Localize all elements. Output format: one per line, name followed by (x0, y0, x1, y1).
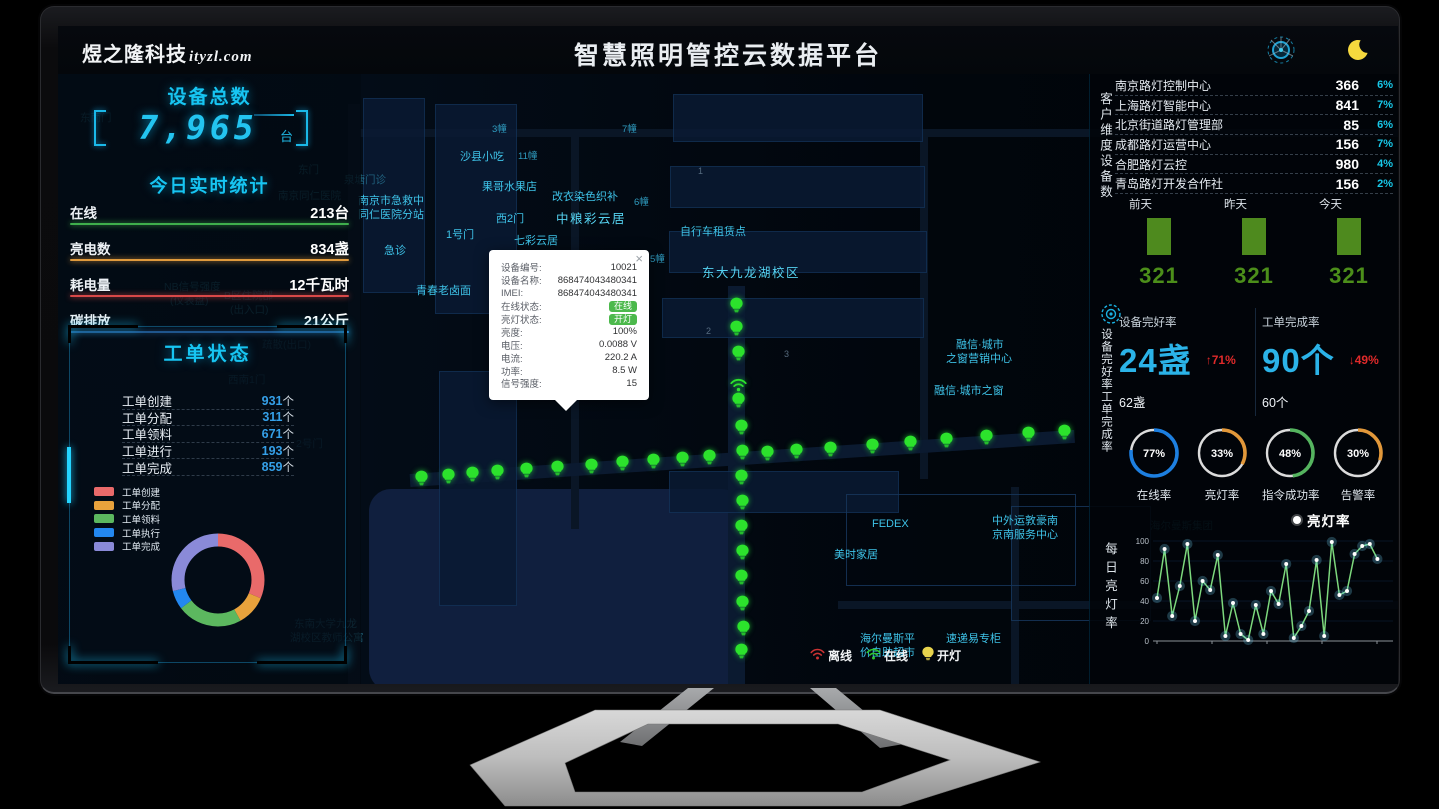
stat-value: 213台 (310, 202, 349, 223)
gauge-chart: 48% 指令成功率 (1262, 426, 1318, 503)
stat-underline (70, 259, 349, 261)
popup-field-value: 15 (626, 378, 637, 389)
lamp-marker-icon[interactable] (442, 468, 455, 489)
customer-name: 上海路灯智能中心 (1115, 97, 1315, 114)
map-status-legend: 离线在线开灯 (810, 646, 961, 664)
map-place-label: 2 (706, 326, 711, 336)
rate-card-sub: 62盏 (1119, 392, 1257, 411)
legend-swatch-icon (94, 501, 114, 510)
svg-text:77%: 77% (1143, 448, 1165, 460)
map-place-label: 7幢 (622, 121, 637, 135)
customer-name: 青岛路灯开发合作社 (1115, 175, 1315, 192)
map-place-label: 京南服务中心 (992, 526, 1058, 542)
popup-field-label: 亮度: (501, 325, 523, 339)
customer-device-count: 156 (1315, 176, 1359, 192)
workorder-value: 193个 (262, 443, 294, 459)
svg-text:80: 80 (1140, 557, 1149, 566)
rate-card-value: 90个 (1262, 334, 1335, 382)
gauge-chart: 33% 亮灯率 (1194, 426, 1250, 503)
day-bar (1147, 218, 1171, 255)
map-water-block (369, 489, 743, 684)
legend-swatch-icon (94, 487, 114, 496)
map-place-label: 5幢 (650, 251, 665, 265)
customer-device-count: 980 (1315, 156, 1359, 172)
map-legend-item: 在线 (866, 646, 908, 664)
gauge-chart: 77% 在线率 (1126, 426, 1182, 503)
map-place-label: 东大九龙湖校区 (702, 262, 800, 281)
legend-swatch-icon (94, 542, 114, 551)
customer-rows: 南京路灯控制中心3666%上海路灯智能中心8417%北京街道路灯管理部856%成… (1115, 76, 1393, 194)
lamp-marker-icon[interactable] (616, 455, 629, 476)
customer-percent: 6% (1359, 119, 1393, 131)
svg-text:33%: 33% (1211, 448, 1233, 460)
customer-percent: 7% (1359, 138, 1393, 150)
gauge-label: 告警率 (1330, 487, 1386, 503)
frame-edge-accent (67, 447, 71, 503)
map-place-label: 七彩云居 (514, 232, 558, 248)
map-place-label: 1号门 (446, 226, 474, 242)
lamp-marker-icon[interactable] (703, 449, 716, 470)
map-place-label: 改衣染色织补 (552, 188, 618, 204)
page-title: 智慧照明管控云数据平台 (58, 36, 1398, 72)
popup-pointer (555, 400, 577, 411)
rate-card-trend: ↑71% (1206, 353, 1236, 367)
day-bar (1242, 218, 1266, 255)
lamp-marker-icon[interactable] (790, 443, 803, 464)
map-place-label: 中粮彩云居 (556, 208, 626, 227)
workorder-value: 931个 (262, 393, 294, 409)
popup-close-icon[interactable]: × (635, 252, 643, 265)
day-bar-column: 昨天321 (1210, 196, 1298, 289)
popup-field-label: 在线状态: (501, 299, 542, 313)
left-panel: 设备总数 7,965 台 今日实时统计 在线213台亮电数834盏耗电量12千瓦… (58, 74, 361, 684)
popup-field-label: 信号强度: (501, 376, 542, 390)
customer-name: 成都路灯运营中心 (1115, 136, 1315, 153)
right-panel: 客户维度设备数 南京路灯控制中心3666%上海路灯智能中心8417%北京街道路灯… (1089, 74, 1398, 684)
lamp-marker-icon[interactable] (735, 569, 748, 590)
bracket-decoration (94, 110, 106, 146)
map-place-label: FEDEX (872, 518, 909, 530)
workorder-value: 311个 (262, 409, 294, 425)
map-place-label: 美时家居 (834, 546, 878, 562)
workorder-row: 工单完成859个 (122, 459, 294, 476)
popup-row: 亮灯状态:开灯 (501, 313, 637, 326)
moon-icon[interactable] (1346, 38, 1370, 67)
rate-card-sub: 60个 (1262, 392, 1398, 411)
popup-row: IMEI:868474043480341 (501, 287, 637, 300)
lamp-marker-icon[interactable] (824, 441, 837, 462)
map-place-label: 沙县小吃 (460, 148, 504, 164)
customer-name: 南京路灯控制中心 (1115, 77, 1315, 94)
three-day-bar-chart: 前天321昨天321今天321 (1115, 196, 1393, 289)
today-stat-row: 亮电数834盏 (70, 238, 349, 261)
status-badge: 在线 (609, 301, 637, 312)
map-place-label: 速递易专柜 (946, 630, 1001, 646)
lamp-marker-icon[interactable] (735, 469, 748, 490)
lamp-marker-icon[interactable] (676, 451, 689, 472)
lamp-marker-icon[interactable] (732, 345, 745, 366)
day-bar-column: 前天321 (1115, 196, 1203, 289)
lamp-marker-icon[interactable] (736, 444, 749, 465)
map-place-label: 11幢 (518, 148, 537, 162)
map-place-label: 西2门 (496, 210, 524, 226)
radar-decoration-icon (1258, 28, 1304, 77)
legend-label: 工单领料 (122, 512, 160, 526)
daily-chart-legend[interactable]: 亮灯率 (1293, 510, 1351, 530)
customer-name: 合肥路灯云控 (1115, 156, 1315, 173)
customer-row: 北京街道路灯管理部856% (1115, 115, 1393, 135)
map-place-label: 果哥水果店 (482, 178, 537, 194)
map-place-label: 自行车租赁点 (680, 223, 746, 239)
map-place-label: 6幢 (634, 194, 649, 208)
svg-text:0: 0 (1145, 637, 1150, 646)
wifi-online-marker-icon[interactable] (730, 378, 747, 397)
customer-percent: 6% (1359, 79, 1393, 91)
customer-percent: 4% (1359, 158, 1393, 170)
legend-swatch-icon (94, 528, 114, 537)
popup-row: 电流:220.2 A (501, 351, 637, 364)
gauge-label: 在线率 (1126, 487, 1182, 503)
map-legend-label: 在线 (884, 647, 908, 664)
lamp-marker-icon[interactable] (1058, 424, 1071, 445)
customer-device-count: 841 (1315, 97, 1359, 113)
today-stats-title: 今日实时统计 (58, 172, 361, 198)
lamp-marker-icon[interactable] (585, 458, 598, 479)
popup-row: 电压:0.0088 V (501, 338, 637, 351)
workorder-legend-item[interactable]: 工单完成 (94, 539, 160, 553)
workorder-legend-item[interactable]: 工单领料 (94, 512, 160, 526)
lamp-marker-icon[interactable] (737, 620, 750, 641)
lamp-marker-icon[interactable] (761, 445, 774, 466)
customer-row: 合肥路灯云控9804% (1115, 155, 1393, 175)
workorder-label: 工单完成 (122, 458, 172, 477)
customer-device-count: 85 (1315, 117, 1359, 133)
workorder-panel: 工单状态 工单创建931个工单分配311个工单领料671个工单进行193个工单完… (69, 326, 346, 663)
svg-text:20: 20 (1140, 617, 1149, 626)
day-value: 321 (1139, 263, 1179, 289)
bracket-decoration (296, 110, 308, 146)
lamp-marker-icon[interactable] (736, 544, 749, 565)
customer-row: 青岛路灯开发合作社1562% (1115, 174, 1393, 194)
stat-label: 耗电量 (70, 274, 111, 294)
lamp-marker-icon[interactable] (940, 432, 953, 453)
popup-row: 在线状态:在线 (501, 300, 637, 313)
status-badge: 开灯 (609, 314, 637, 325)
rate-card-title: 设备完好率 (1119, 314, 1257, 330)
lamp-marker-icon[interactable] (1022, 426, 1035, 447)
map-place-label: 1 (698, 166, 703, 176)
lamp-marker-icon[interactable] (735, 519, 748, 540)
wifi-icon (810, 648, 825, 663)
popup-field-value: 868474043480341 (558, 288, 637, 299)
gauge-chart: 30% 告警率 (1330, 426, 1386, 503)
workorder-donut-chart (168, 530, 268, 630)
workorder-legend: 工单创建工单分配工单领料工单执行工单完成 (94, 485, 160, 553)
popup-field-label: 电流: (501, 351, 523, 365)
today-stat-row: 在线213台 (70, 202, 349, 225)
customer-percent: 7% (1359, 99, 1393, 111)
popup-row: 功率:8.5 W (501, 364, 637, 377)
today-stat-row: 耗电量12千瓦时 (70, 274, 349, 297)
gauge-label: 指令成功率 (1262, 487, 1318, 503)
lamp-marker-icon[interactable] (551, 460, 564, 481)
svg-text:30%: 30% (1347, 448, 1369, 460)
workorder-rows: 工单创建931个工单分配311个工单领料671个工单进行193个工单完成859个 (122, 393, 294, 476)
lamp-marker-icon[interactable] (415, 470, 428, 491)
divider (1255, 308, 1256, 416)
workorder-legend-item[interactable]: 工单执行 (94, 526, 160, 540)
lamp-marker-icon[interactable] (904, 435, 917, 456)
map-building (662, 298, 924, 338)
map-legend-item: 开灯 (922, 646, 961, 664)
legend-dot-icon (1293, 516, 1301, 524)
workorder-rate-card: 工单完成率 90个↓49% 60个 (1262, 314, 1398, 411)
map-place-label: 3 (784, 349, 789, 359)
frame-corner (257, 646, 347, 664)
svg-text:60: 60 (1140, 577, 1149, 586)
lamp-marker-icon[interactable] (730, 320, 743, 341)
popup-row: 信号强度:15 (501, 377, 637, 390)
legend-label: 工单执行 (122, 526, 160, 540)
gauge-charts: 77% 在线率 33% 亮灯率 48% 指令成功率 30% 告警率 (1090, 426, 1398, 506)
popup-field-value: 0.0088 V (599, 339, 637, 350)
customer-device-count: 156 (1315, 136, 1359, 152)
customer-row: 上海路灯智能中心8417% (1115, 96, 1393, 116)
day-value: 321 (1329, 263, 1369, 289)
map-place-label: 急诊 (384, 242, 406, 258)
legend-label: 工单创建 (122, 485, 160, 499)
dashboard-screen: 泉塘门诊南京市急救中同仁医院分站急诊1号门沙县小吃3幢11幢果哥水果店西2门七彩… (58, 26, 1398, 684)
map-place-label: 融信·城市之窗 (934, 382, 1004, 398)
workorder-value: 671个 (262, 426, 294, 442)
map-building (670, 166, 925, 208)
daily-chart-side-label: 每日亮灯率 (1101, 542, 1120, 635)
popup-field-value: 220.2 A (605, 352, 637, 363)
day-label: 昨天 (1224, 196, 1247, 212)
stat-value: 12千瓦时 (289, 274, 349, 295)
customer-row: 南京路灯控制中心3666% (1115, 76, 1393, 96)
map-place-label: 同仁医院分站 (358, 206, 424, 222)
legend-label: 工单分配 (122, 498, 160, 512)
day-bar-column: 今天321 (1305, 196, 1393, 289)
popup-field-label: IMEI: (501, 288, 523, 299)
lamp-marker-icon[interactable] (866, 438, 879, 459)
customer-name: 北京街道路灯管理部 (1115, 116, 1315, 133)
popup-field-value: 8.5 W (612, 365, 637, 376)
gauge-label: 亮灯率 (1194, 487, 1250, 503)
workorder-legend-item[interactable]: 工单分配 (94, 499, 160, 513)
rate-card-value: 24盏 (1119, 334, 1192, 382)
legend-swatch-icon (94, 514, 114, 523)
day-value: 321 (1234, 263, 1274, 289)
day-label: 前天 (1129, 196, 1152, 212)
rate-card-trend: ↓49% (1349, 353, 1379, 367)
popup-row: 设备名称:868474043480341 (501, 274, 637, 287)
popup-field-label: 亮灯状态: (501, 312, 542, 326)
svg-text:40: 40 (1140, 597, 1149, 606)
legend-label: 亮灯率 (1307, 510, 1351, 530)
map-legend-label: 离线 (828, 647, 852, 664)
device-total-title: 设备总数 (58, 82, 361, 109)
workorder-title: 工单状态 (70, 339, 345, 366)
map-place-label: 青春老卤面 (416, 282, 471, 298)
stat-underline (70, 295, 349, 297)
lamp-marker-icon[interactable] (730, 297, 743, 318)
stat-label: 亮电数 (70, 238, 111, 258)
popup-row: 亮度:100% (501, 325, 637, 338)
device-total-value: 7,965 (118, 108, 278, 147)
svg-text:48%: 48% (1279, 448, 1301, 460)
workorder-legend-item[interactable]: 工单创建 (94, 485, 160, 499)
customers-side-label: 客户维度设备数 (1096, 92, 1115, 201)
lamp-marker-icon[interactable] (491, 464, 504, 485)
popup-field-label: 功率: (501, 364, 523, 378)
page: { "header": { "logo": "煜之隆科技", "logo_dom… (0, 0, 1439, 809)
stat-value: 834盏 (310, 238, 349, 259)
popup-field-value: 100% (613, 326, 637, 337)
day-label: 今天 (1319, 196, 1342, 212)
lamp-marker-icon[interactable] (520, 462, 533, 483)
svg-text:100: 100 (1136, 537, 1150, 546)
lamp-marker-icon[interactable] (736, 494, 749, 515)
legend-label: 工单完成 (122, 539, 160, 553)
frame-corner (68, 646, 158, 664)
map-place-label: 3幢 (492, 121, 507, 135)
header-bar: 煜之隆科技ityzl.com 智慧照明管控云数据平台 (58, 26, 1398, 74)
popup-field-label: 电压: (501, 338, 523, 352)
workorder-value: 859个 (262, 459, 294, 475)
map-legend-item: 离线 (810, 646, 852, 664)
popup-field-value: 868474043480341 (558, 275, 637, 286)
customer-percent: 2% (1359, 178, 1393, 190)
customer-row: 成都路灯运营中心1567% (1115, 135, 1393, 155)
popup-field-value: 10021 (611, 262, 637, 273)
lamp-marker-icon[interactable] (735, 643, 748, 664)
lamp-marker-icon[interactable] (980, 429, 993, 450)
monitor-stand (430, 688, 1070, 809)
popup-row: 设备编号:10021 (501, 261, 637, 274)
device-info-popup: × 设备编号:10021设备名称:868474043480341IMEI:868… (489, 250, 649, 400)
lamp-marker-icon[interactable] (736, 595, 749, 616)
lamp-marker-icon[interactable] (735, 419, 748, 440)
stat-underline (70, 223, 349, 225)
rate-card-title: 工单完成率 (1262, 314, 1398, 330)
stat-label: 在线 (70, 202, 97, 222)
day-bar (1337, 218, 1361, 255)
map-legend-label: 开灯 (937, 647, 961, 664)
device-rate-card: 设备完好率 24盏↑71% 62盏 (1119, 314, 1257, 411)
popup-field-label: 设备名称: (501, 273, 542, 287)
popup-field-label: 设备编号: (501, 260, 542, 274)
daily-line-chart: 020406080100 (1131, 529, 1398, 664)
popup-rows: 设备编号:10021设备名称:868474043480341IMEI:86847… (501, 261, 637, 390)
lamp-marker-icon[interactable] (647, 453, 660, 474)
bulb-icon (922, 646, 934, 664)
map-place-label: 之窗营销中心 (946, 350, 1012, 366)
map-building (673, 94, 923, 142)
customer-device-count: 366 (1315, 77, 1359, 93)
lamp-marker-icon[interactable] (466, 466, 479, 487)
monitor-bezel: 泉塘门诊南京市急救中同仁医院分站急诊1号门沙县小吃3幢11幢果哥水果店西2门七彩… (40, 6, 1400, 694)
device-total-unit: 台 (280, 126, 293, 145)
wifi-icon (866, 648, 881, 663)
